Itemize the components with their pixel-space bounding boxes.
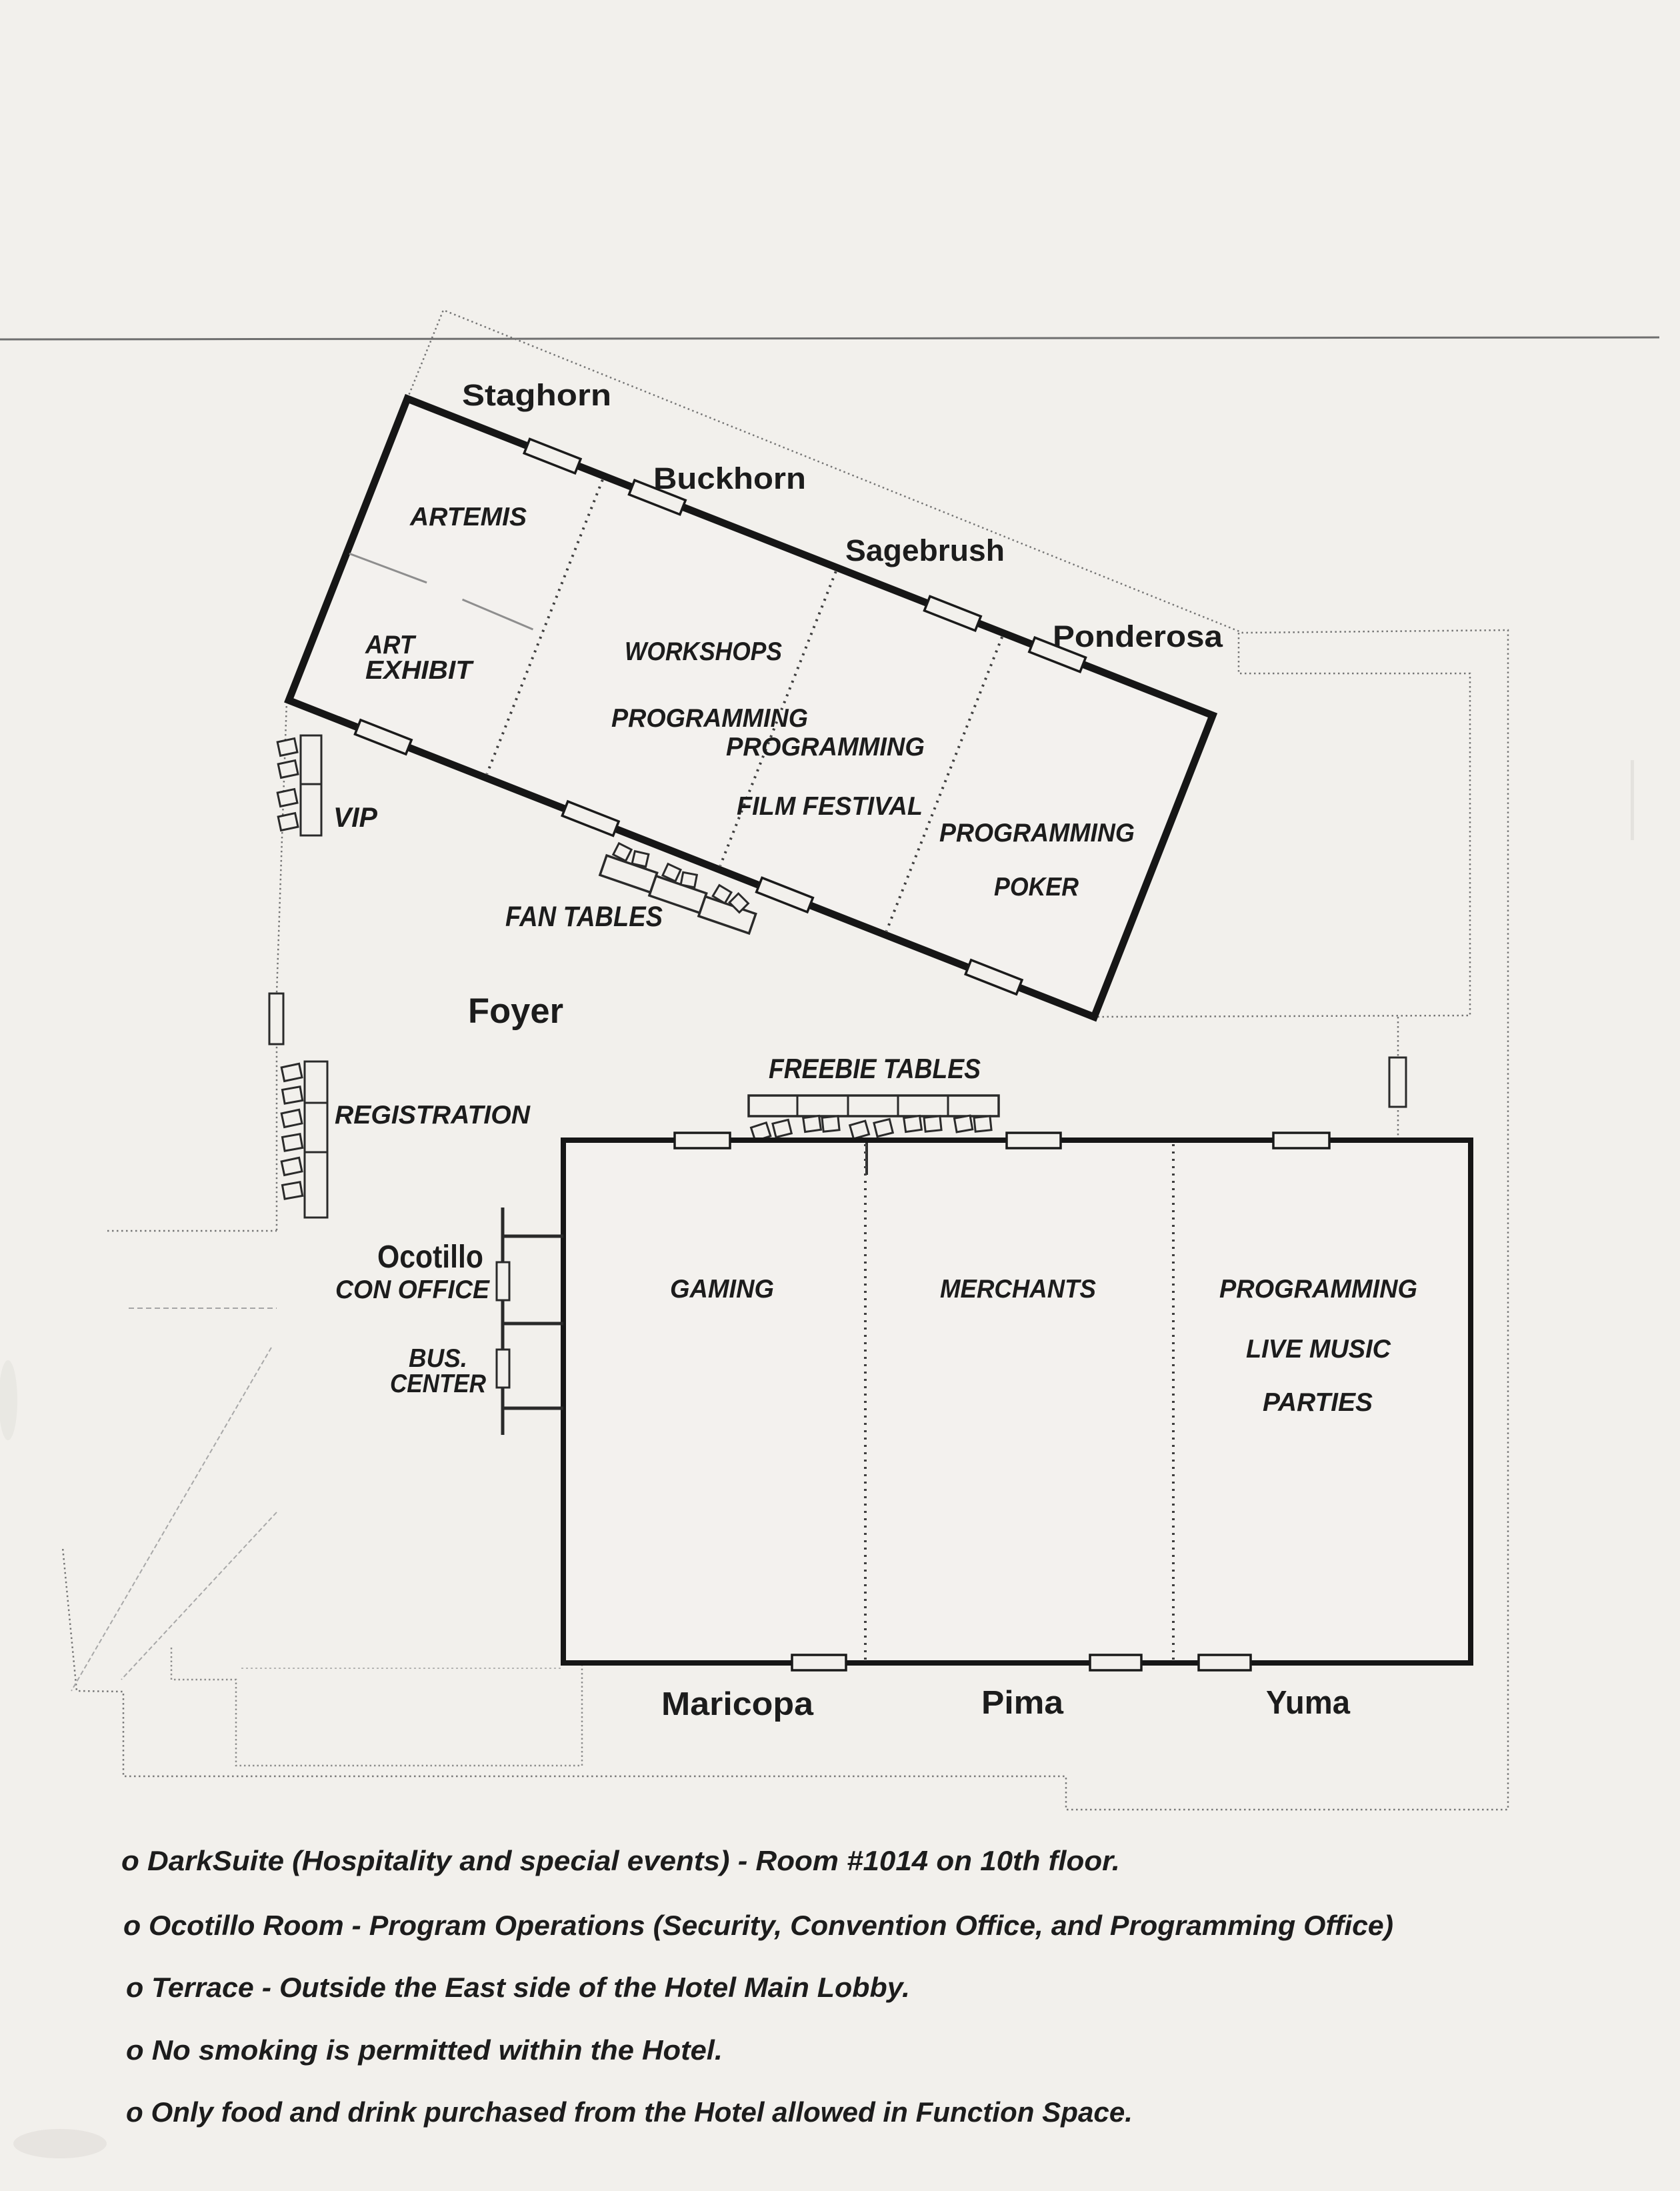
svg-text:PROGRAMMING: PROGRAMMING [1219, 1275, 1417, 1304]
svg-text:BUS.: BUS. [409, 1344, 467, 1373]
svg-text:CENTER: CENTER [390, 1370, 486, 1398]
svg-text:PARTIES: PARTIES [1263, 1388, 1373, 1417]
svg-text:o Ocotillo Room - Program Oper: o Ocotillo Room - Program Operations (Se… [123, 1910, 1393, 1941]
svg-text:Ocotillo: Ocotillo [377, 1240, 483, 1275]
svg-text:Buckhorn: Buckhorn [653, 461, 806, 495]
svg-text:PROGRAMMING: PROGRAMMING [939, 819, 1135, 847]
svg-text:WORKSHOPS: WORKSHOPS [625, 637, 782, 666]
svg-text:o No smoking is permitted with: o No smoking is permitted within the Hot… [126, 2034, 723, 2066]
svg-text:LIVE MUSIC: LIVE MUSIC [1246, 1335, 1391, 1364]
svg-text:FAN TABLES: FAN TABLES [505, 901, 663, 933]
svg-text:FILM FESTIVAL: FILM FESTIVAL [737, 792, 923, 821]
svg-text:REGISTRATION: REGISTRATION [335, 1101, 531, 1130]
svg-text:Ponderosa: Ponderosa [1053, 619, 1223, 653]
svg-text:EXHIBIT: EXHIBIT [365, 656, 474, 685]
svg-text:CON OFFICE: CON OFFICE [335, 1276, 490, 1304]
svg-text:Foyer: Foyer [468, 991, 563, 1031]
svg-text:MERCHANTS: MERCHANTS [940, 1275, 1096, 1304]
svg-text:FREEBIE TABLES: FREEBIE TABLES [769, 1053, 981, 1084]
svg-text:PROGRAMMING: PROGRAMMING [726, 733, 925, 761]
svg-text:POKER: POKER [994, 873, 1079, 901]
svg-text:PROGRAMMING: PROGRAMMING [611, 704, 808, 733]
svg-text:Sagebrush: Sagebrush [845, 533, 1005, 567]
svg-text:o DarkSuite (Hospitality and s: o DarkSuite (Hospitality and special eve… [121, 1845, 1120, 1876]
svg-text:Yuma: Yuma [1266, 1685, 1351, 1721]
svg-text:Maricopa: Maricopa [661, 1686, 814, 1722]
svg-text:ART: ART [365, 631, 417, 659]
svg-text:ARTEMIS: ARTEMIS [409, 503, 527, 531]
svg-text:o Only food and drink purchase: o Only food and drink purchased from the… [126, 2096, 1133, 2128]
svg-text:Staghorn: Staghorn [462, 378, 611, 412]
svg-text:GAMING: GAMING [670, 1275, 774, 1304]
svg-text:VIP: VIP [333, 801, 378, 833]
svg-text:o Terrace - Outside the East s: o Terrace - Outside the East side of the… [126, 1972, 910, 2003]
svg-text:Pima: Pima [981, 1685, 1064, 1721]
